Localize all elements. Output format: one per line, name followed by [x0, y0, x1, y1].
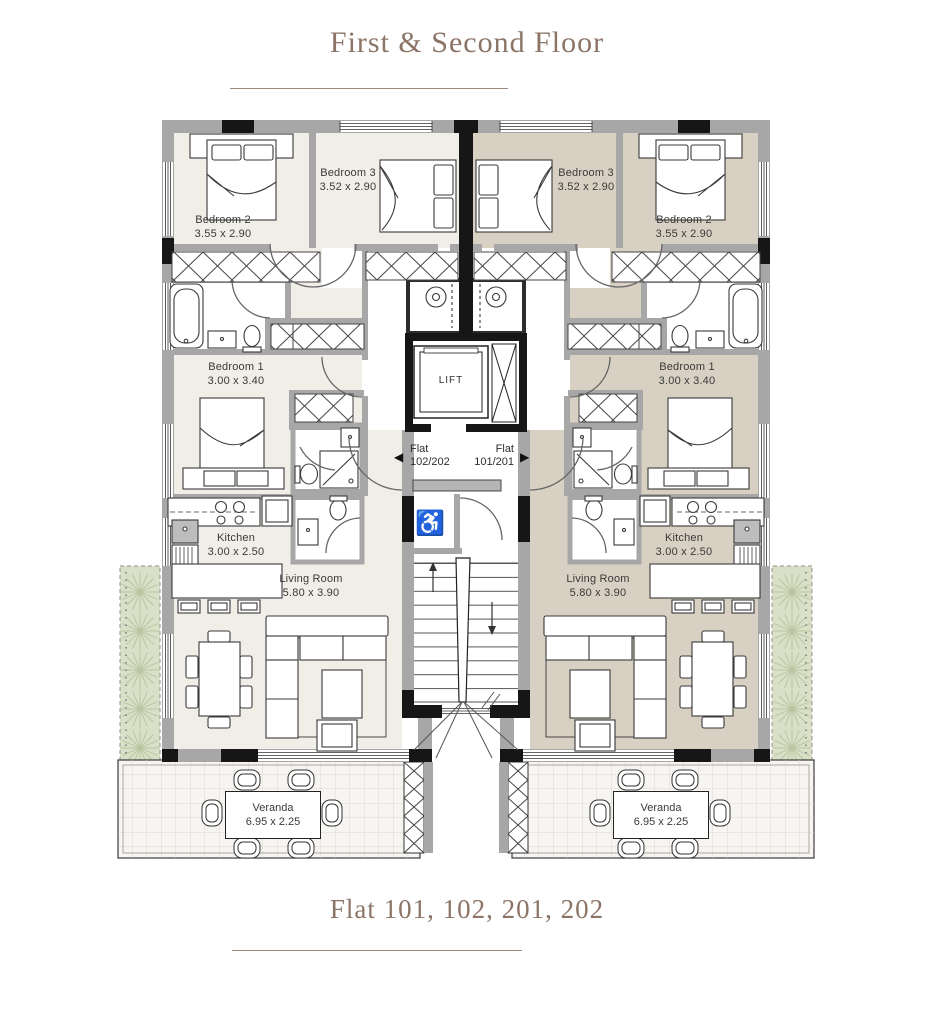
page-subtitle: Flat 101, 102, 201, 202 [0, 894, 934, 925]
hall-label-flat-101-201: Flat 101/201 [462, 443, 514, 469]
room-label-veranda-right: Veranda 6.95 x 2.25 [613, 791, 709, 839]
arrow-right-icon: ▶ [520, 451, 529, 463]
hall-threshold [413, 480, 501, 491]
room-label-living-room-left: Living Room 5.80 x 3.90 [251, 572, 371, 600]
room-label-bedroom2-left: Bedroom 2 3.55 x 2.90 [163, 213, 283, 241]
subtitle-underline [232, 950, 522, 951]
floor-plan-drawing: ♿ [0, 0, 934, 1012]
room-label-bedroom3-right: Bedroom 3 3.52 x 2.90 [526, 166, 646, 194]
hedge-strip [120, 566, 160, 767]
lift-duct [492, 344, 516, 422]
lift-label: LIFT [421, 375, 481, 386]
wheelchair-icon: ♿ [415, 509, 445, 537]
room-label-bedroom1-left: Bedroom 1 3.00 x 3.40 [176, 360, 296, 388]
arrow-left-icon: ◀ [394, 451, 403, 463]
room-label-bedroom1-right: Bedroom 1 3.00 x 3.40 [627, 360, 747, 388]
room-label-living-room-right: Living Room 5.80 x 3.90 [538, 572, 658, 600]
hall-label-flat-102-202: Flat 102/202 [410, 443, 462, 469]
room-label-kitchen-left: Kitchen 3.00 x 2.50 [176, 531, 296, 559]
room-label-bedroom2-right: Bedroom 2 3.55 x 2.90 [624, 213, 744, 241]
room-label-veranda-left: Veranda 6.95 x 2.25 [225, 791, 321, 839]
room-label-bedroom3-left: Bedroom 3 3.52 x 2.90 [288, 166, 408, 194]
floor-plan-page: First & Second Floor [0, 0, 934, 1012]
room-label-kitchen-right: Kitchen 3.00 x 2.50 [624, 531, 744, 559]
